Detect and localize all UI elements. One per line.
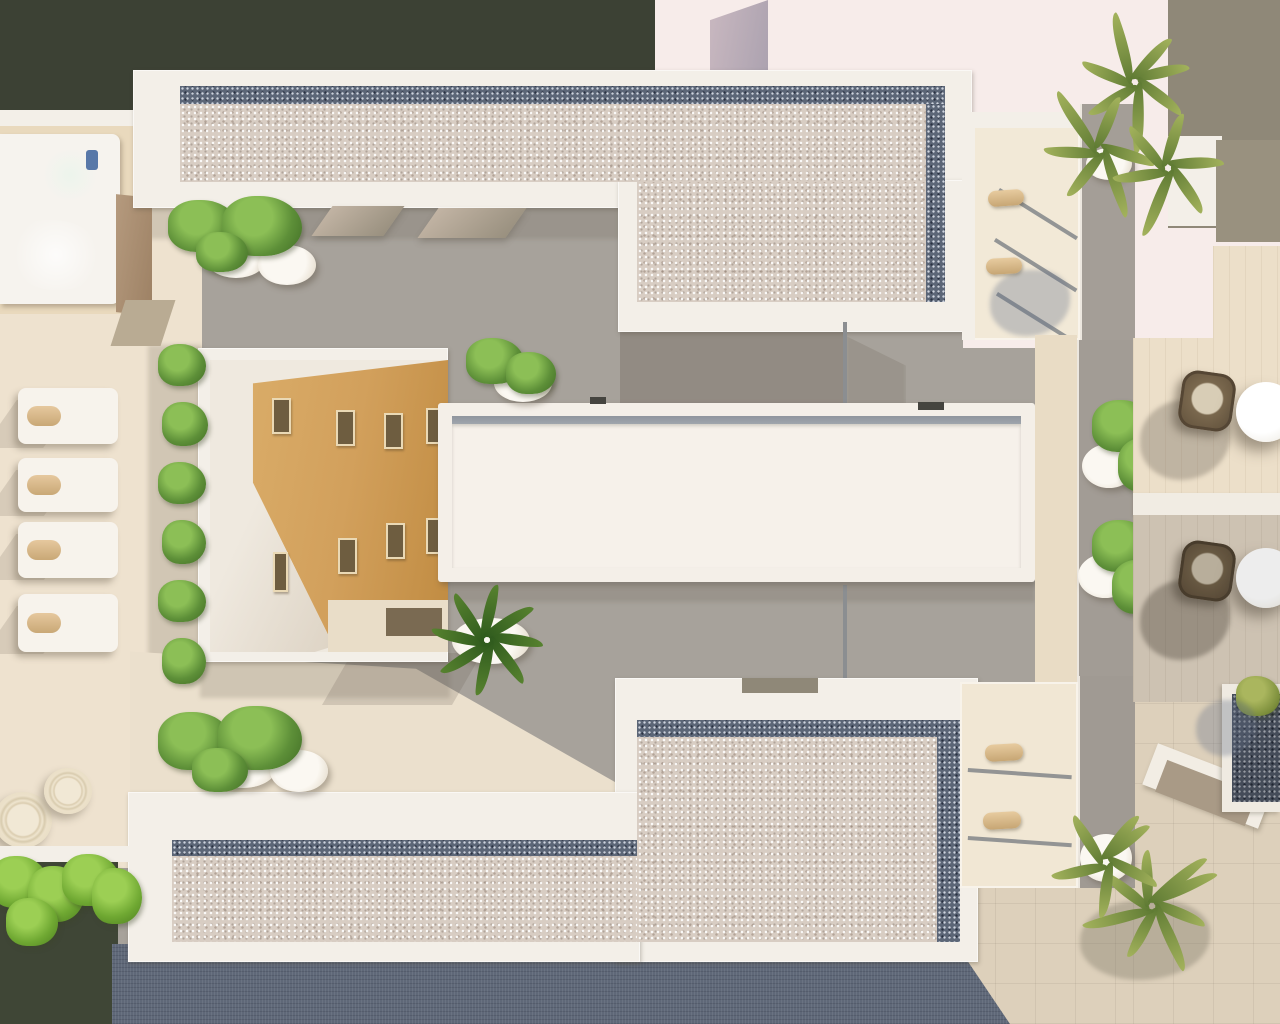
lounger-pillow bbox=[27, 540, 61, 560]
aerial-render-canvas bbox=[0, 0, 1280, 1024]
building-top-gravel-roof bbox=[180, 104, 926, 182]
hedge-bush bbox=[162, 520, 206, 564]
building-bottom-gravel-wing bbox=[637, 737, 937, 942]
wood-deck-right bbox=[1213, 246, 1280, 340]
building-bottom-border-e bbox=[937, 720, 960, 942]
window-slot bbox=[272, 398, 291, 434]
pole-area-shadow bbox=[846, 336, 906, 410]
hedge-bush bbox=[158, 344, 206, 386]
sun-lounger bbox=[18, 522, 118, 578]
hedge-bush bbox=[158, 462, 206, 504]
roof-vent-2 bbox=[918, 402, 944, 410]
taupe-block-2 bbox=[1216, 140, 1280, 242]
balcony-lounger bbox=[987, 189, 1024, 207]
beige-walkway-right bbox=[1035, 335, 1077, 705]
building-a-wing-shadow bbox=[620, 322, 846, 410]
sun-lounger bbox=[18, 594, 118, 652]
flag-pole-upper bbox=[843, 322, 847, 406]
upper-balcony-parapet-w bbox=[962, 112, 975, 340]
lounger-pillow bbox=[27, 406, 61, 426]
vine-plant bbox=[92, 868, 142, 924]
hedge-bush bbox=[158, 580, 206, 622]
building-bottom-gravel-left bbox=[172, 856, 637, 942]
sun-lounger bbox=[18, 458, 118, 512]
round-pouf bbox=[44, 768, 92, 814]
terrace-bush bbox=[196, 232, 248, 272]
vine-plant bbox=[6, 898, 58, 946]
window-slot bbox=[273, 552, 288, 592]
wicker-chair bbox=[1176, 369, 1238, 434]
courtyard-south-shadow bbox=[200, 658, 450, 698]
lower-terrace bbox=[960, 682, 1078, 888]
walkway-bush bbox=[192, 748, 248, 792]
roof-corner-plant bbox=[506, 352, 556, 394]
window-slot bbox=[338, 538, 357, 574]
sun-lounger bbox=[18, 388, 118, 444]
pool-ladder bbox=[86, 150, 98, 170]
courtyard-interior bbox=[210, 360, 448, 652]
roof-vent-1 bbox=[590, 397, 606, 404]
pool-side-wall bbox=[116, 194, 152, 316]
building-top-gravel-border-n bbox=[180, 86, 945, 104]
hedge-bush bbox=[162, 638, 206, 684]
terrace-lounger bbox=[983, 811, 1022, 830]
building-bottom-border-n bbox=[637, 720, 937, 737]
building-top-gravel-border-e bbox=[926, 104, 945, 302]
upper-balcony-parapet bbox=[968, 112, 1080, 128]
window-slot bbox=[384, 413, 403, 449]
window-slot bbox=[336, 410, 355, 446]
building-top-gravel-wing bbox=[637, 182, 926, 302]
building-bottom-border-w bbox=[172, 840, 637, 856]
central-roof-shadow bbox=[450, 582, 1035, 602]
balcony-divider bbox=[1133, 493, 1280, 515]
hedge-bush bbox=[162, 402, 208, 446]
lounger-pillow bbox=[27, 475, 61, 495]
lounger-pillow bbox=[27, 613, 61, 633]
rooftop-pad bbox=[742, 678, 818, 693]
window-slot bbox=[386, 523, 405, 559]
terrace-lounger bbox=[985, 743, 1024, 762]
central-roof-panel bbox=[452, 424, 1021, 568]
wicker-chair bbox=[1176, 539, 1238, 604]
balcony-lounger bbox=[986, 257, 1023, 275]
